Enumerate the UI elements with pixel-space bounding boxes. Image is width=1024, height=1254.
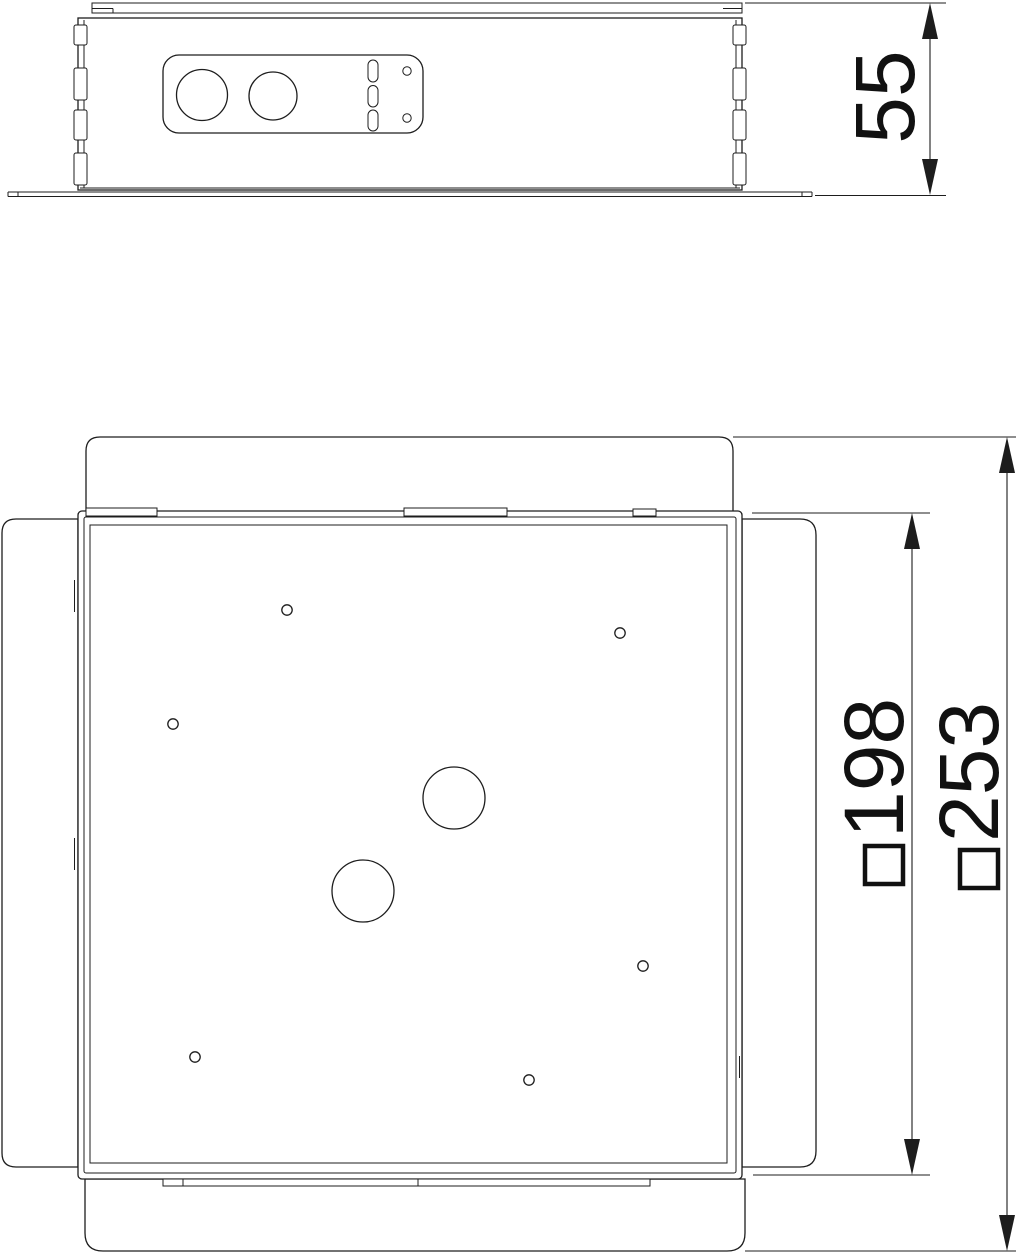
square-symbol-icon bbox=[865, 846, 903, 884]
cable-entry-hole bbox=[249, 72, 297, 120]
bottom-edge-tabs bbox=[163, 1179, 650, 1186]
side-tab bbox=[733, 110, 746, 140]
dimension-label-198: 198 bbox=[827, 698, 921, 884]
side-tab bbox=[74, 110, 87, 140]
arrow-down-icon bbox=[999, 1215, 1015, 1251]
side-tab bbox=[733, 153, 746, 185]
side-tab bbox=[74, 68, 87, 100]
side-box-inner-edges bbox=[80, 20, 740, 188]
technical-drawing: 55 bbox=[0, 0, 1024, 1254]
dimension-value: 55 bbox=[838, 50, 932, 143]
side-tab bbox=[733, 25, 746, 45]
side-left-tabs bbox=[74, 25, 87, 185]
arrow-down-icon bbox=[904, 1139, 920, 1175]
dimension-value: 198 bbox=[827, 698, 921, 838]
seam-tab bbox=[86, 508, 157, 516]
arrow-up-icon bbox=[922, 3, 938, 39]
side-lid bbox=[92, 3, 742, 13]
seam-tab bbox=[163, 1179, 183, 1186]
screw-hole bbox=[403, 114, 411, 122]
slot bbox=[368, 60, 378, 82]
side-right-tabs bbox=[733, 25, 746, 185]
seam-tab bbox=[404, 508, 507, 516]
seam-tab bbox=[633, 509, 656, 516]
side-tab bbox=[733, 68, 746, 100]
side-entry-plate bbox=[163, 55, 423, 133]
bottom-flap bbox=[85, 1179, 745, 1251]
cable-entry-hole bbox=[177, 70, 228, 121]
arrow-down-icon bbox=[922, 159, 938, 195]
dimension-value: 253 bbox=[922, 702, 1016, 842]
right-flap bbox=[742, 519, 816, 1167]
dimension-55: 55 bbox=[745, 3, 946, 196]
dimension-label-55: 55 bbox=[838, 50, 932, 143]
slot bbox=[368, 86, 378, 108]
plan-view: 198 253 bbox=[2, 437, 1016, 1251]
drawing-canvas: 55 bbox=[0, 0, 1024, 1254]
slot bbox=[368, 110, 378, 131]
dimension-label-253: 253 bbox=[922, 702, 1016, 888]
square-symbol-icon bbox=[960, 850, 998, 888]
arrow-up-icon bbox=[999, 437, 1015, 473]
screw-hole bbox=[403, 67, 411, 75]
top-flap bbox=[86, 437, 733, 513]
box-body-outline bbox=[78, 511, 742, 1179]
side-view: 55 bbox=[8, 3, 946, 197]
arrow-up-icon bbox=[904, 513, 920, 549]
side-tab bbox=[74, 153, 87, 185]
plate-slots bbox=[368, 60, 378, 131]
side-bottom-flange bbox=[8, 192, 812, 197]
seam-tab bbox=[183, 1179, 650, 1186]
left-flap bbox=[2, 519, 78, 1167]
side-tab bbox=[74, 25, 87, 45]
